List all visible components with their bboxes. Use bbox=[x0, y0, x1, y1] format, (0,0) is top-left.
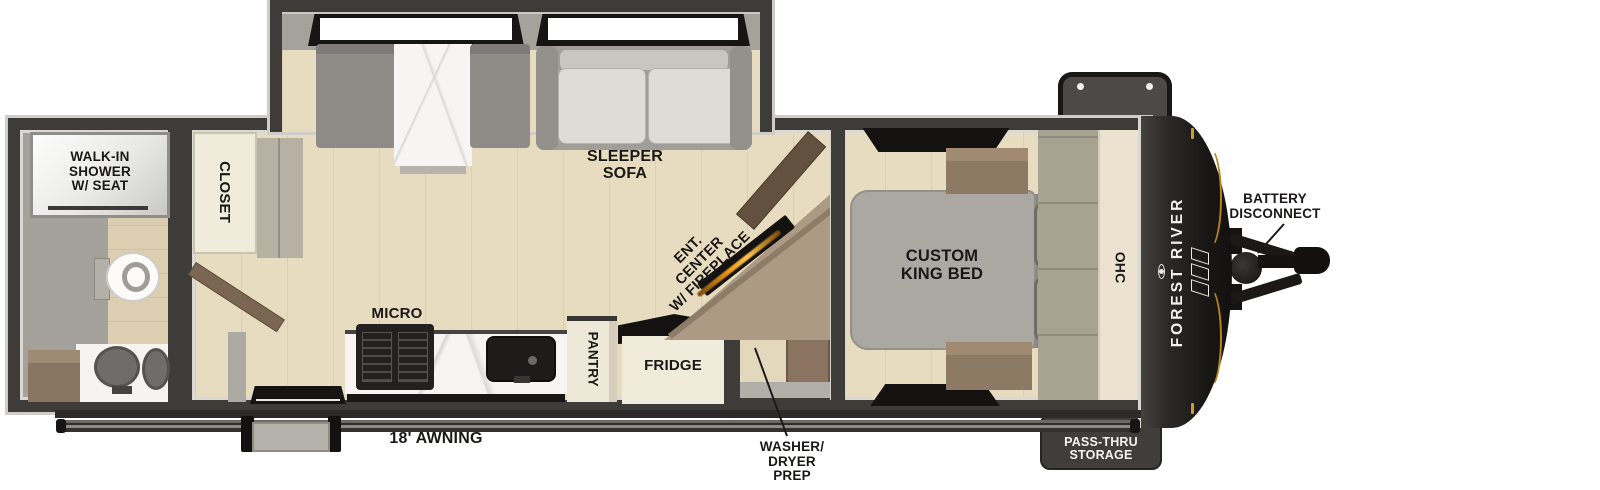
floorplan-canvas: LARGE PASS-THRU STORAGE SLEEPER SOFA CLO… bbox=[0, 0, 1600, 490]
callout-pointer-lines bbox=[0, 0, 1600, 490]
